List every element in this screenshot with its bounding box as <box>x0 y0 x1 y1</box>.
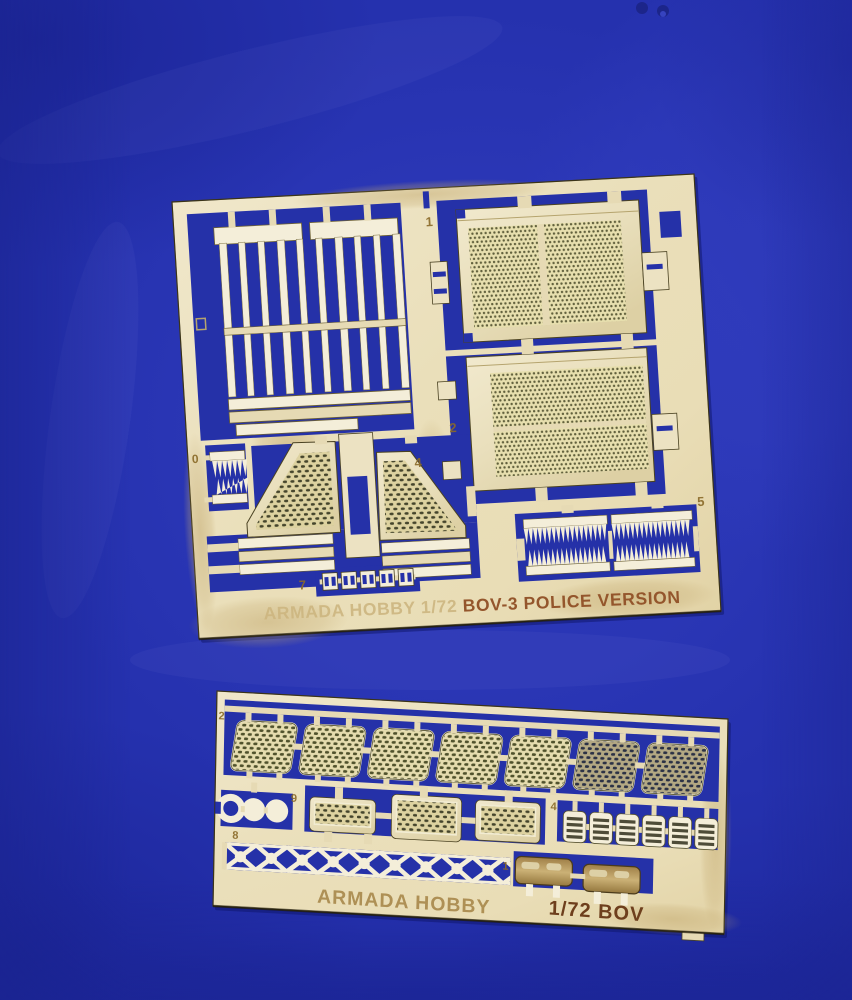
svg-text:7: 7 <box>298 577 306 592</box>
svg-text:1: 1 <box>425 214 433 229</box>
svg-text:2: 2 <box>449 420 457 435</box>
svg-text:1: 1 <box>502 861 508 873</box>
svg-text:9: 9 <box>291 793 297 805</box>
svg-text:5: 5 <box>697 494 705 509</box>
svg-text:0: 0 <box>191 452 199 466</box>
svg-text:4: 4 <box>550 801 557 813</box>
svg-text:8: 8 <box>232 830 238 842</box>
svg-text:2: 2 <box>218 710 224 722</box>
